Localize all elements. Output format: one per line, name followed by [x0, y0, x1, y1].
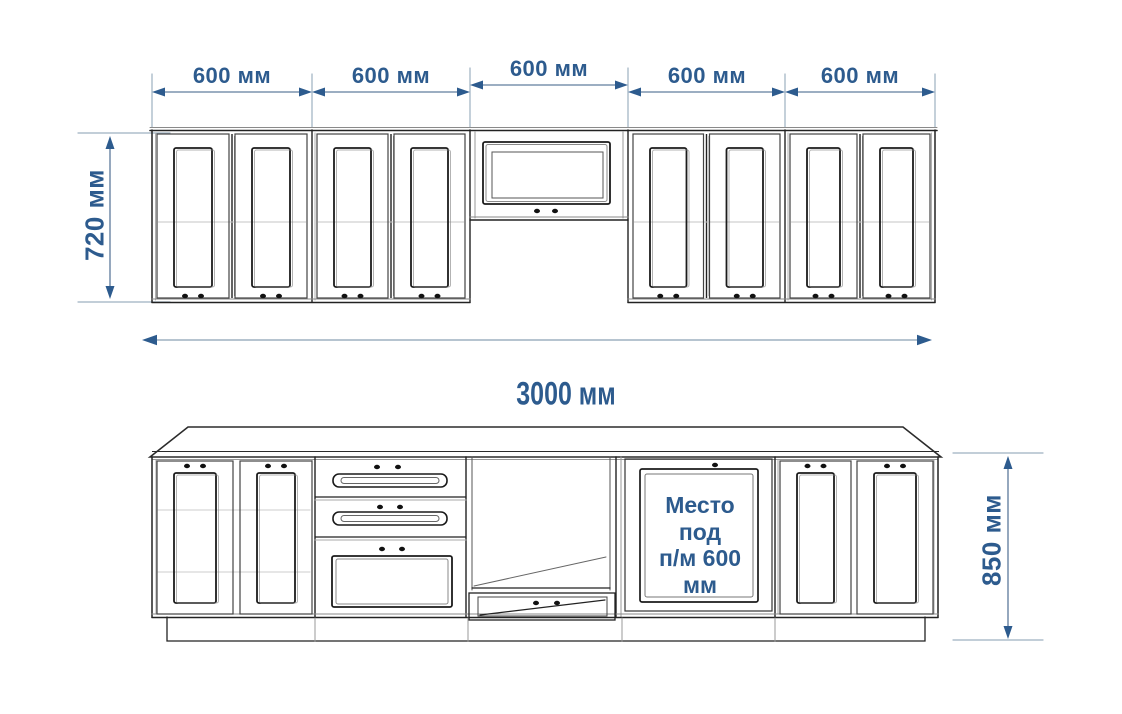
door-panel-frame-echo	[177, 475, 219, 603]
base-cabinet-door-group	[780, 461, 851, 614]
door-panel-frame	[174, 473, 216, 603]
door-panel-frame-echo	[260, 475, 298, 603]
base-cabinet-door-group	[857, 461, 933, 614]
handle-dot	[734, 294, 740, 298]
upper-wall-unit	[790, 134, 930, 298]
handle-dot	[419, 294, 425, 298]
dim-label-upper-4: 600 мм	[668, 63, 746, 89]
cabinet-door	[857, 461, 933, 614]
cabinet-door	[317, 134, 388, 298]
handle-dot	[884, 464, 890, 468]
upper-cabinet-doors	[157, 134, 930, 298]
door-panel-frame-echo	[877, 475, 919, 603]
door-panel-frame-echo	[883, 150, 916, 287]
door-panel-frame-echo	[177, 150, 215, 287]
cabinet-door	[633, 134, 704, 298]
door-panel-frame-echo	[810, 150, 843, 287]
handle-dot	[265, 464, 271, 468]
cabinet-door	[235, 134, 307, 298]
drawer-handle-top	[333, 474, 447, 487]
dim-label-upper-3: 600 мм	[510, 56, 588, 82]
door-panel-frame-echo	[255, 150, 293, 287]
deep-drawer-front	[332, 556, 452, 607]
handle-dot	[673, 294, 679, 298]
handle-dot	[902, 294, 908, 298]
handle-dot	[829, 294, 835, 298]
door-panel-frame-echo	[337, 150, 374, 287]
dim-label-upper-1: 600 мм	[193, 63, 271, 89]
base-cabinet-door-group	[240, 461, 312, 614]
door-panel-frame	[411, 148, 448, 287]
dim-label-upper-2: 600 мм	[352, 63, 430, 89]
door-panel-frame-echo	[800, 475, 837, 603]
door-panel-frame-echo	[653, 150, 690, 287]
handle-dot	[276, 294, 282, 298]
door-panel-frame	[334, 148, 371, 287]
upper-cabinets-linework	[150, 128, 937, 303]
handle-dot	[900, 464, 906, 468]
hood-wall-unit	[470, 132, 628, 220]
countertop	[150, 427, 941, 457]
cabinet-door	[394, 134, 465, 298]
dishwasher-note-line: под	[630, 519, 770, 546]
handle-dot	[821, 464, 827, 468]
handle-dot	[198, 294, 204, 298]
upper-wall-unit	[157, 134, 307, 298]
dishwasher-note-line: Место	[630, 492, 770, 519]
oven-niche	[469, 557, 615, 620]
cabinet-door	[157, 461, 233, 614]
dishwasher-note: Место под п/м 600 мм	[630, 492, 770, 598]
door-panel-frame	[650, 148, 687, 287]
upper-wall-unit	[633, 134, 780, 298]
upper-wall-unit	[317, 134, 465, 298]
door-panel-frame	[807, 148, 840, 287]
handle-dot	[750, 294, 756, 298]
handle-dot	[184, 464, 190, 468]
dim-label-total-width: 3000 мм	[516, 376, 615, 413]
cabinet-door	[790, 134, 857, 298]
handle-dot	[435, 294, 441, 298]
handle-dot	[281, 464, 287, 468]
drawer-handle-middle	[333, 512, 447, 525]
door-panel-frame	[727, 148, 764, 287]
handle-dot	[886, 294, 892, 298]
handle-dot	[813, 294, 819, 298]
door-panel-frame	[797, 473, 834, 603]
dishwasher-note-line: мм	[630, 572, 770, 599]
dim-label-base-height: 850 мм	[977, 494, 1008, 586]
door-panel-frame	[257, 473, 295, 603]
handle-dot	[657, 294, 663, 298]
kitchen-elevation-canvas: 600 мм 600 мм 600 мм 600 мм 600 мм 720 м…	[0, 0, 1122, 714]
door-panel-frame-echo	[729, 150, 766, 287]
dim-label-upper-5: 600 мм	[821, 63, 899, 89]
base-cabinet-doors	[157, 461, 933, 614]
door-panel-frame	[174, 148, 212, 287]
door-panel-frame	[252, 148, 290, 287]
handle-dot	[358, 294, 364, 298]
dishwasher-note-line: п/м 600	[630, 545, 770, 572]
handle-dot	[342, 294, 348, 298]
cabinet-door	[780, 461, 851, 614]
dim-label-upper-height: 720 мм	[80, 169, 111, 261]
door-panel-frame	[874, 473, 916, 603]
handle-dot	[805, 464, 811, 468]
cabinet-door	[240, 461, 312, 614]
drawer-unit	[315, 465, 466, 607]
handle-dot	[200, 464, 206, 468]
oven-niche-drawer	[469, 593, 615, 620]
handle-dot	[260, 294, 266, 298]
base-cabinet-door-group	[157, 461, 233, 614]
door-panel-frame-echo	[414, 150, 451, 287]
handle-dot	[182, 294, 188, 298]
cabinet-door	[157, 134, 229, 298]
door-panel-frame	[880, 148, 913, 287]
kitchen-elevation-linework	[0, 0, 1122, 714]
cabinet-door	[710, 134, 781, 298]
cabinet-door	[863, 134, 930, 298]
total-width-dimension	[142, 335, 932, 345]
